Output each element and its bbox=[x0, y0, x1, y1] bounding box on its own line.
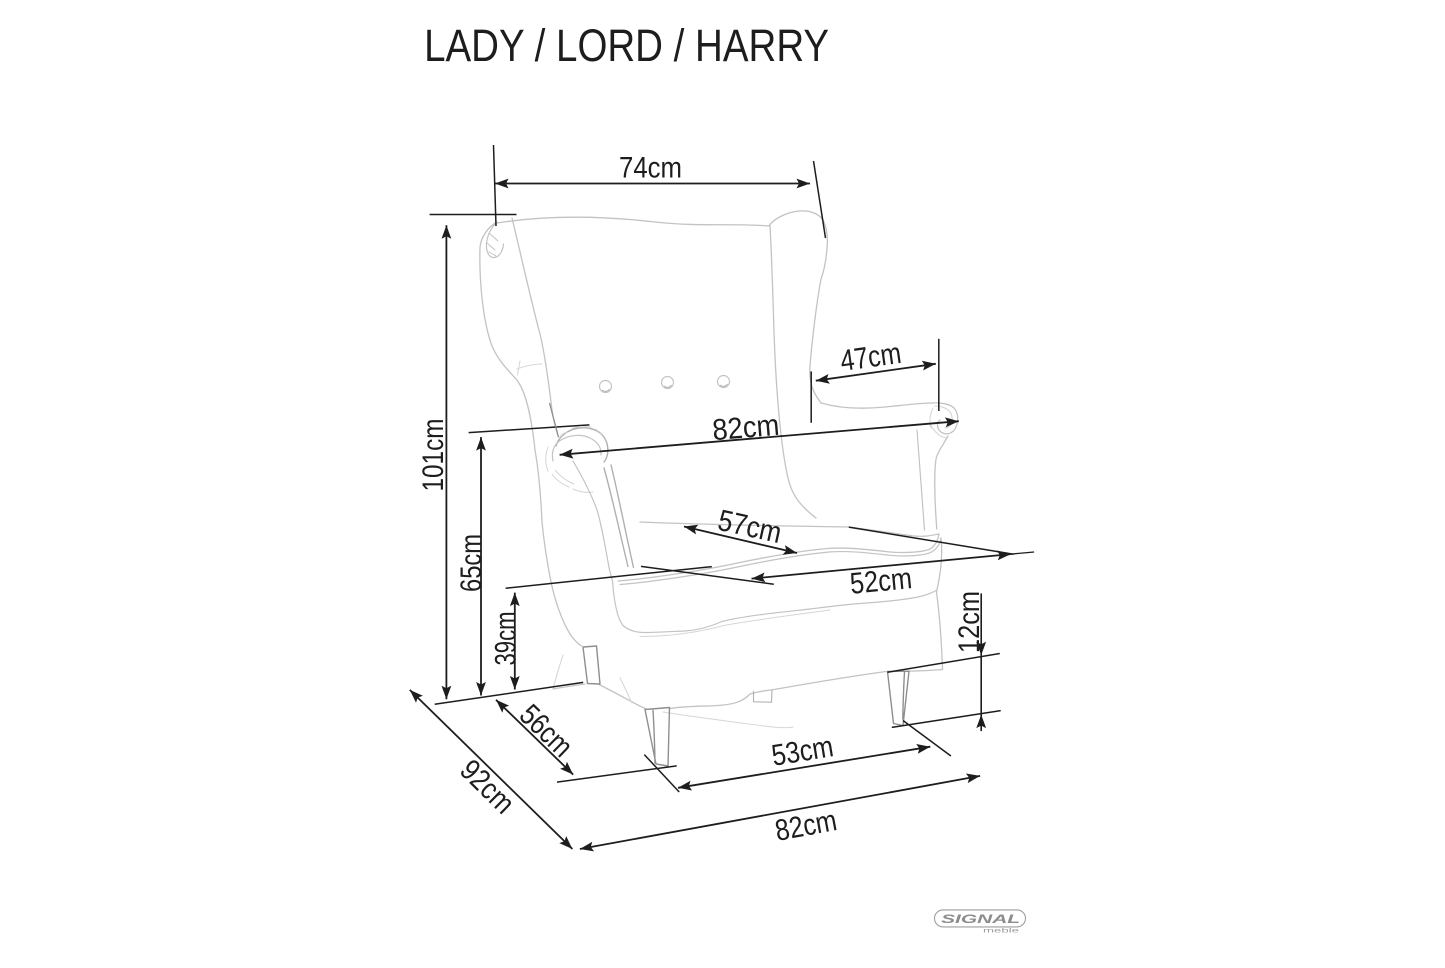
svg-text:LADY / LORD / HARRY: LADY / LORD / HARRY bbox=[424, 20, 829, 71]
svg-text:74cm: 74cm bbox=[619, 152, 682, 185]
svg-text:meble: meble bbox=[983, 927, 1020, 934]
svg-text:SIGNAL: SIGNAL bbox=[941, 912, 1020, 926]
svg-text:82cm: 82cm bbox=[711, 409, 781, 447]
svg-text:101cm: 101cm bbox=[417, 419, 450, 492]
svg-text:65cm: 65cm bbox=[455, 534, 488, 592]
svg-text:39cm: 39cm bbox=[490, 612, 523, 666]
svg-text:52cm: 52cm bbox=[849, 562, 914, 601]
svg-text:12cm: 12cm bbox=[953, 591, 986, 653]
